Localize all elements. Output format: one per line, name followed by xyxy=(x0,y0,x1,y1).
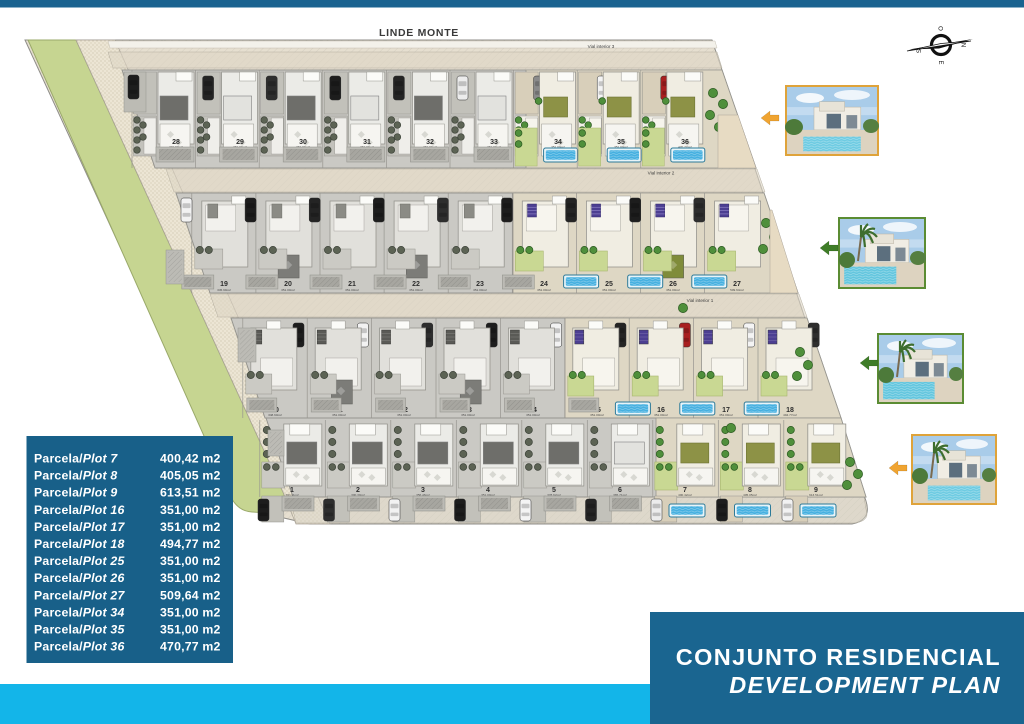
svg-text:DEVELOPMENT PLAN: DEVELOPMENT PLAN xyxy=(729,672,1001,698)
svg-text:Parcela/Plot 36: Parcela/Plot 36 xyxy=(34,640,125,654)
svg-text:S: S xyxy=(915,49,921,53)
svg-text:351.00m2: 351.00m2 xyxy=(666,288,680,292)
svg-text:LINDE MONTE: LINDE MONTE xyxy=(379,27,459,39)
svg-text:20: 20 xyxy=(284,281,292,288)
svg-text:25: 25 xyxy=(605,281,613,288)
svg-text:351.00m2: 351.00m2 xyxy=(719,413,733,417)
svg-text:Parcela/Plot 18: Parcela/Plot 18 xyxy=(34,537,125,551)
svg-text:470,77 m2: 470,77 m2 xyxy=(160,640,221,654)
svg-text:Parcela/Plot 26: Parcela/Plot 26 xyxy=(34,571,125,585)
svg-text:Parcela/Plot 35: Parcela/Plot 35 xyxy=(34,623,125,637)
svg-text:O: O xyxy=(937,26,943,31)
svg-text:351,00 m2: 351,00 m2 xyxy=(160,554,221,568)
svg-text:22: 22 xyxy=(412,281,420,288)
svg-text:405.05m2: 405.05m2 xyxy=(743,493,757,497)
svg-text:494.77m2: 494.77m2 xyxy=(783,413,797,417)
svg-text:405,05 m2: 405,05 m2 xyxy=(160,469,221,483)
svg-text:351.00m2: 351.00m2 xyxy=(397,413,411,417)
svg-text:351.00m2: 351.00m2 xyxy=(461,413,475,417)
svg-text:26: 26 xyxy=(669,281,677,288)
svg-text:Parcela/Plot 34: Parcela/Plot 34 xyxy=(34,605,125,619)
svg-text:613.51m2: 613.51m2 xyxy=(809,493,823,497)
svg-text:Parcela/Plot 25: Parcela/Plot 25 xyxy=(34,554,125,568)
svg-text:400,42 m2: 400,42 m2 xyxy=(160,452,221,466)
svg-text:E: E xyxy=(937,60,943,64)
svg-text:351.00m2: 351.00m2 xyxy=(281,288,295,292)
svg-text:351.00m2: 351.00m2 xyxy=(537,288,551,292)
svg-text:348.60m2: 348.60m2 xyxy=(268,413,282,417)
svg-text:23: 23 xyxy=(476,281,484,288)
svg-text:351,00 m2: 351,00 m2 xyxy=(160,571,221,585)
svg-text:345.99m2: 345.99m2 xyxy=(217,288,231,292)
svg-text:N: N xyxy=(960,43,966,47)
svg-text:400.42m2: 400.42m2 xyxy=(678,493,692,497)
svg-text:351.00m2: 351.00m2 xyxy=(526,413,540,417)
svg-text:494,77 m2: 494,77 m2 xyxy=(160,537,221,551)
svg-text:351.00m2: 351.00m2 xyxy=(409,288,423,292)
svg-text:351,00 m2: 351,00 m2 xyxy=(160,605,221,619)
svg-text:27: 27 xyxy=(733,281,741,288)
svg-text:351,00 m2: 351,00 m2 xyxy=(160,623,221,637)
svg-text:351.00m2: 351.00m2 xyxy=(654,413,668,417)
svg-text:Parcela/Plot 8: Parcela/Plot 8 xyxy=(34,469,117,483)
svg-text:Parcela/Plot 16: Parcela/Plot 16 xyxy=(34,503,125,517)
svg-text:Parcela/Plot 27: Parcela/Plot 27 xyxy=(34,588,125,602)
svg-text:21: 21 xyxy=(348,281,356,288)
svg-text:24: 24 xyxy=(540,281,548,288)
svg-text:Parcela/Plot 9: Parcela/Plot 9 xyxy=(34,486,117,500)
svg-text:Parcela/Plot 7: Parcela/Plot 7 xyxy=(34,452,118,466)
svg-text:Vial interior 2: Vial interior 2 xyxy=(648,171,675,176)
svg-text:613,51 m2: 613,51 m2 xyxy=(160,486,221,500)
svg-text:351.00m2: 351.00m2 xyxy=(590,413,604,417)
svg-text:351,00 m2: 351,00 m2 xyxy=(160,503,221,517)
svg-text:Vial interior 3: Vial interior 3 xyxy=(588,44,615,49)
svg-text:CONJUNTO RESIDENCIAL: CONJUNTO RESIDENCIAL xyxy=(676,644,1001,670)
svg-text:Vial interior 1: Vial interior 1 xyxy=(687,298,714,303)
svg-text:19: 19 xyxy=(220,281,228,288)
svg-text:351.00m2: 351.00m2 xyxy=(332,413,346,417)
svg-text:351,00 m2: 351,00 m2 xyxy=(160,520,221,534)
svg-text:509,64 m2: 509,64 m2 xyxy=(160,588,221,602)
svg-text:351.00m2: 351.00m2 xyxy=(473,288,487,292)
svg-text:351.00m2: 351.00m2 xyxy=(345,288,359,292)
svg-text:351.00m2: 351.00m2 xyxy=(602,288,616,292)
svg-text:Parcela/Plot 17: Parcela/Plot 17 xyxy=(34,520,125,534)
svg-text:509.64m2: 509.64m2 xyxy=(730,288,744,292)
